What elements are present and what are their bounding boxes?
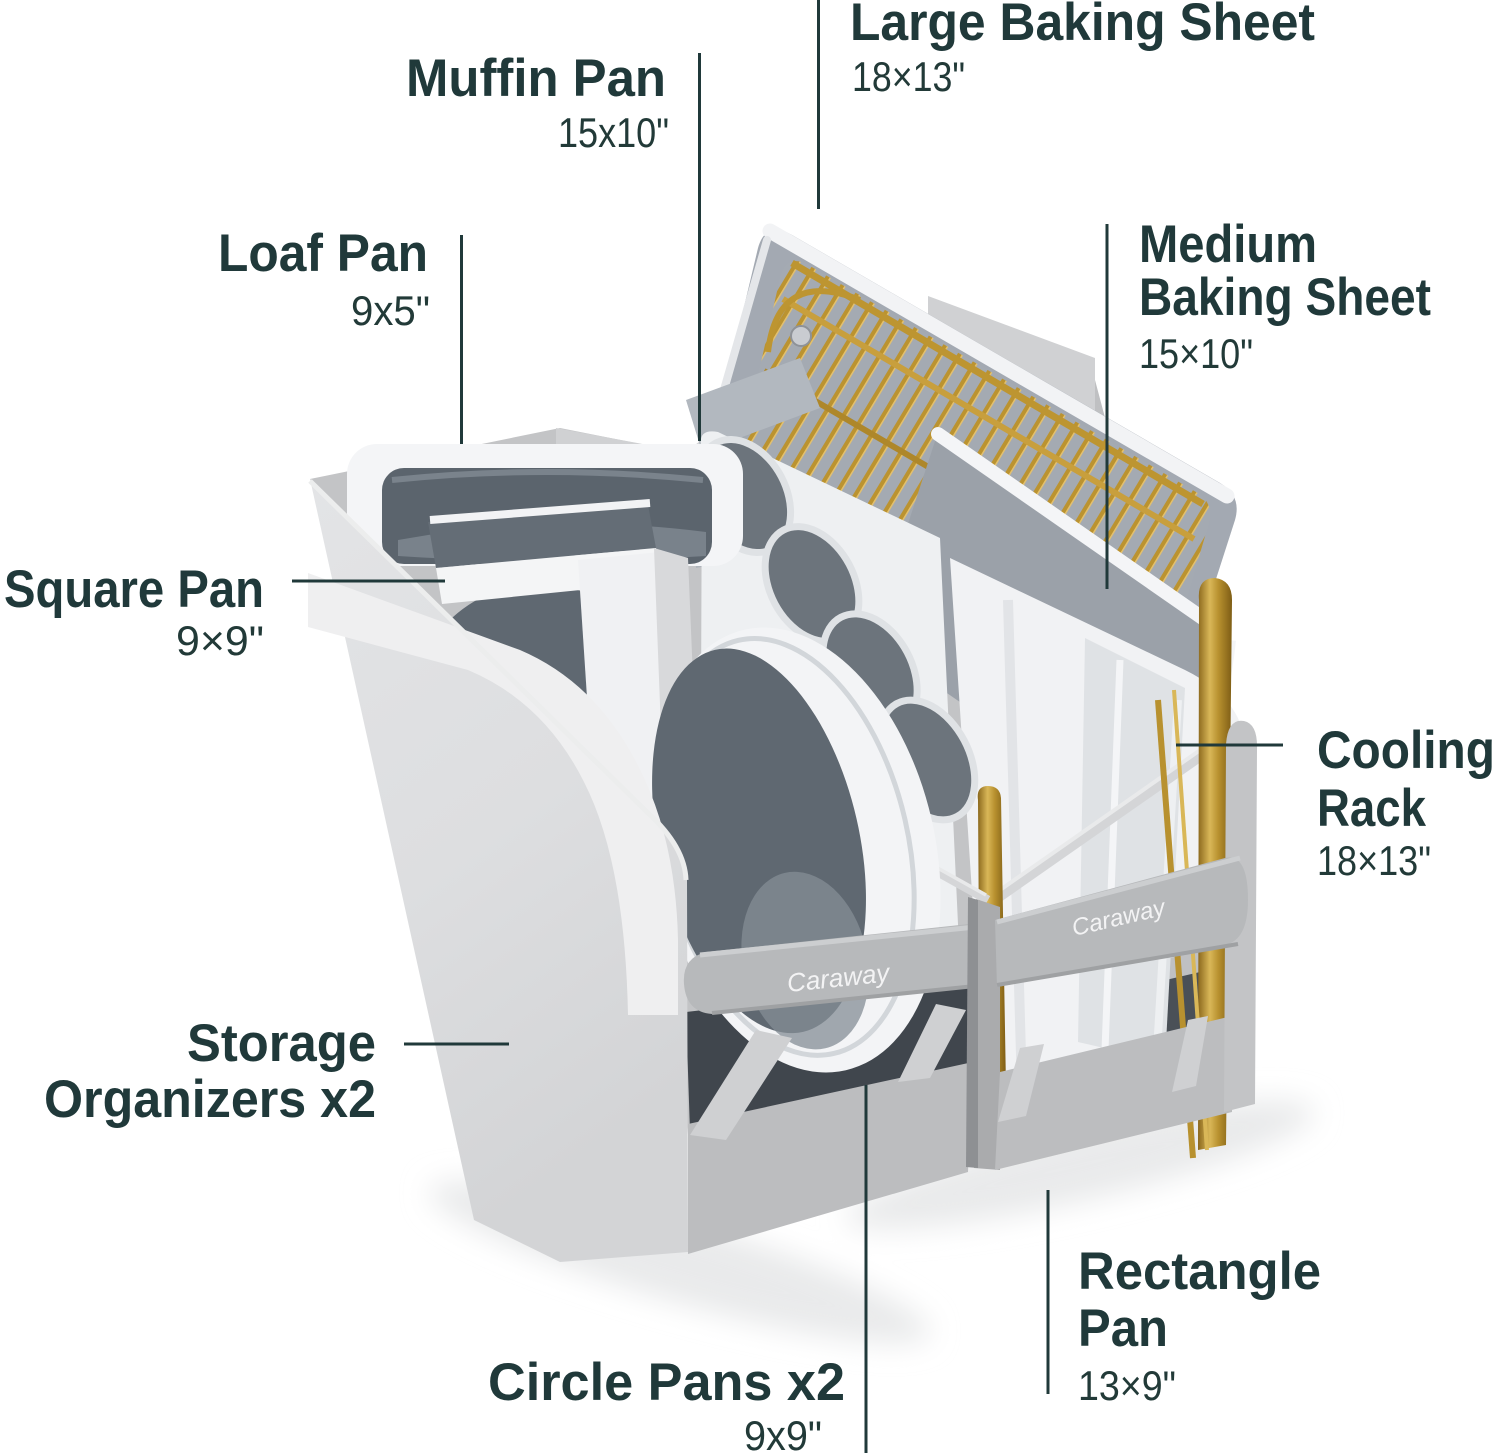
svg-text:Pan: Pan: [1078, 1299, 1168, 1358]
svg-text:15×10": 15×10": [1139, 330, 1253, 377]
svg-text:18×13": 18×13": [1317, 837, 1431, 884]
svg-text:Baking Sheet: Baking Sheet: [1139, 268, 1431, 327]
svg-text:Square Pan: Square Pan: [4, 560, 264, 619]
svg-text:9×9": 9×9": [176, 617, 264, 664]
svg-text:15x10": 15x10": [558, 109, 669, 156]
svg-text:Medium: Medium: [1139, 215, 1317, 274]
svg-text:Cooling: Cooling: [1317, 721, 1495, 780]
svg-text:Storage: Storage: [187, 1014, 376, 1073]
svg-text:Loaf Pan: Loaf Pan: [218, 224, 428, 283]
svg-text:Circle Pans x2: Circle Pans x2: [488, 1353, 845, 1412]
svg-text:Rectangle: Rectangle: [1078, 1242, 1321, 1301]
svg-text:18×13": 18×13": [852, 53, 965, 100]
svg-text:Large Baking Sheet: Large Baking Sheet: [850, 0, 1315, 52]
svg-text:Muffin Pan: Muffin Pan: [406, 49, 666, 108]
svg-text:9x5": 9x5": [351, 287, 430, 334]
svg-text:Organizers x2: Organizers x2: [44, 1070, 376, 1129]
svg-text:9x9": 9x9": [744, 1412, 822, 1453]
svg-text:Rack: Rack: [1317, 779, 1426, 838]
svg-text:13×9": 13×9": [1078, 1362, 1176, 1409]
